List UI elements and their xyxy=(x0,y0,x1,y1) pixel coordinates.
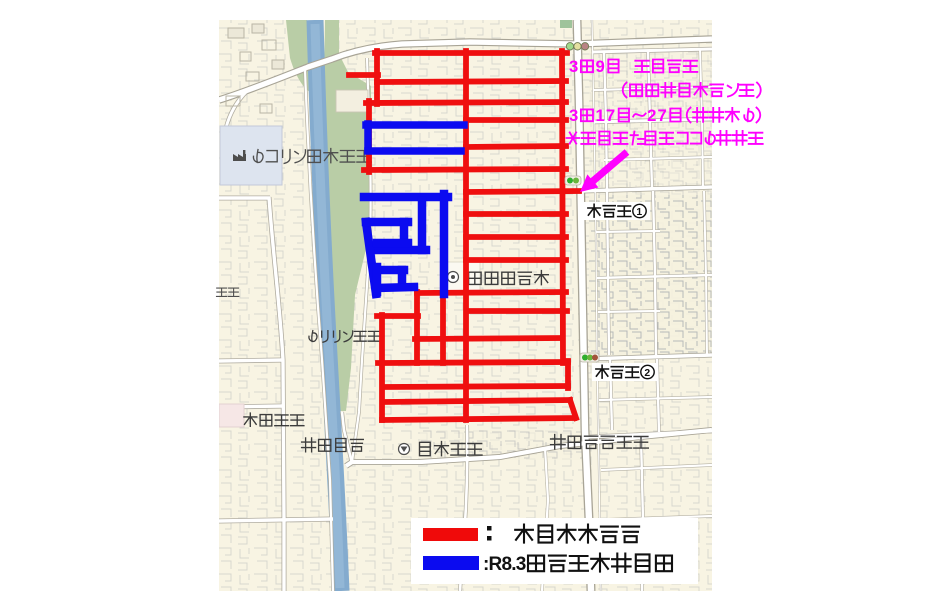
svg-text:3: 3 xyxy=(569,106,578,125)
svg-text:1: 1 xyxy=(596,106,605,125)
svg-text:2: 2 xyxy=(647,106,656,125)
svg-text:3: 3 xyxy=(569,57,578,76)
svg-text:7: 7 xyxy=(606,106,615,125)
svg-text:2: 2 xyxy=(644,368,650,379)
svg-text:1: 1 xyxy=(636,207,642,218)
svg-text:9: 9 xyxy=(596,57,605,76)
svg-text::R8.3: :R8.3 xyxy=(483,554,526,575)
svg-text:7: 7 xyxy=(658,106,667,125)
